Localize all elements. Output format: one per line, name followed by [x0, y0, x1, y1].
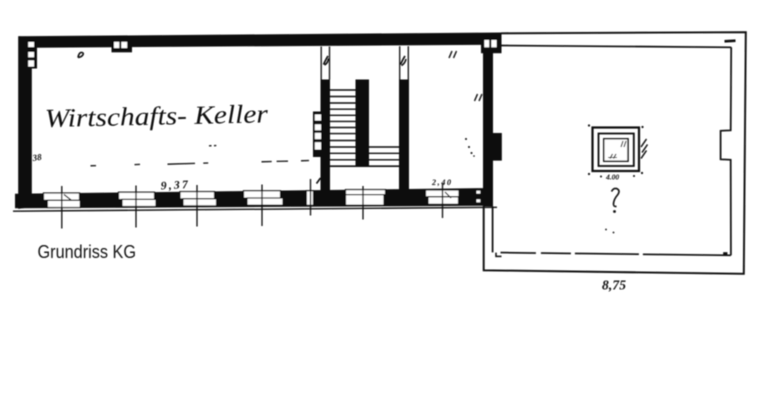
svg-text:2,40: 2,40 — [431, 178, 451, 187]
svg-text:38: 38 — [31, 152, 43, 163]
svg-text:8,75: 8,75 — [602, 278, 626, 293]
svg-text:4.00: 4.00 — [605, 173, 619, 182]
svg-text:9,37: 9,37 — [161, 179, 190, 192]
svg-text:Wirtschafts- Keller: Wirtschafts- Keller — [45, 99, 270, 133]
svg-text:Grundriss KG: Grundriss KG — [38, 241, 137, 262]
